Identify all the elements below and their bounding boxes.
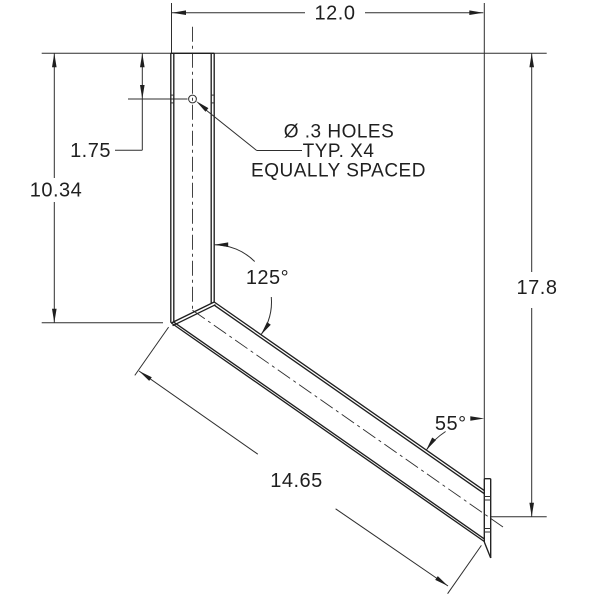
dim-upright-height-label: 10.34	[30, 180, 83, 202]
angle-end-label: 55°	[435, 413, 467, 435]
hole-note-line1: Ø .3 HOLES	[284, 122, 395, 143]
angle-bend-label: 125°	[246, 267, 289, 289]
drawing-background	[0, 0, 600, 600]
dim-overall-width-label: 12.0	[315, 3, 356, 25]
hole-note-line3: EQUALLY SPACED	[251, 161, 426, 182]
dim-arm-length-label: 14.65	[270, 470, 323, 492]
hole-note-line2: TYP. X4	[303, 141, 375, 162]
dim-overall-height-label: 17.8	[517, 277, 558, 299]
dim-hole-offset-label: 1.75	[70, 140, 111, 162]
technical-drawing-canvas: 12.0 10.34 1.75 17.8 14.65 125	[0, 0, 600, 600]
